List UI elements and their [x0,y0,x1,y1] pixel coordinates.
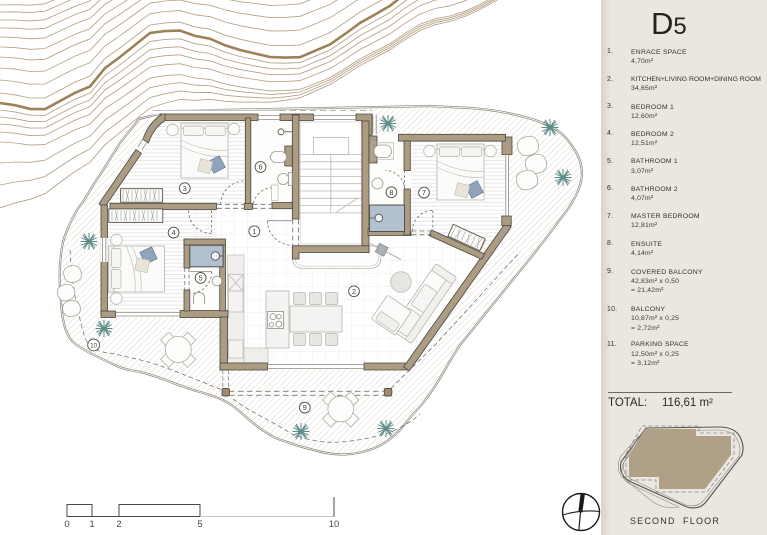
svg-text:9: 9 [303,403,307,412]
svg-text:8: 8 [389,188,393,197]
svg-text:0: 0 [64,519,69,530]
svg-text:10: 10 [90,344,97,350]
svg-text:1: 1 [89,519,94,530]
svg-text:10: 10 [329,519,340,530]
svg-text:2: 2 [352,287,356,296]
svg-text:5: 5 [197,519,202,530]
svg-text:2: 2 [116,519,121,530]
svg-text:1: 1 [252,227,256,236]
svg-text:5: 5 [199,274,203,283]
svg-text:7: 7 [422,188,426,197]
svg-text:6: 6 [259,163,263,172]
svg-text:3: 3 [183,184,187,193]
svg-text:4: 4 [172,228,176,237]
